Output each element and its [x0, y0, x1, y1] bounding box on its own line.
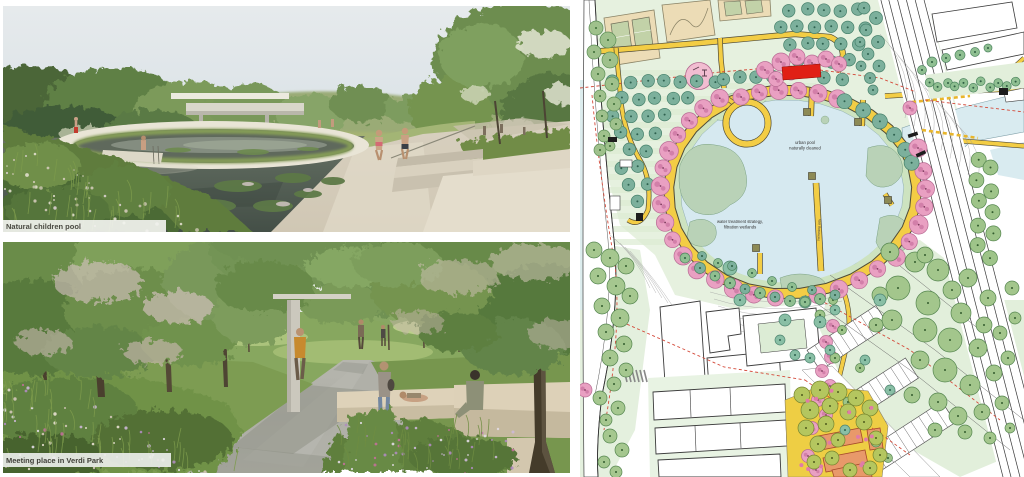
svg-text:water treatment strategy,: water treatment strategy,: [717, 219, 763, 224]
svg-text:Natural children pool: Natural children pool: [6, 222, 81, 231]
svg-text:naturally cleaned: naturally cleaned: [789, 146, 821, 151]
svg-text:Meeting place in Verdi Park: Meeting place in Verdi Park: [6, 456, 104, 465]
svg-text:filtration wetlands: filtration wetlands: [724, 225, 756, 230]
svg-text:urban pool: urban pool: [795, 140, 815, 145]
